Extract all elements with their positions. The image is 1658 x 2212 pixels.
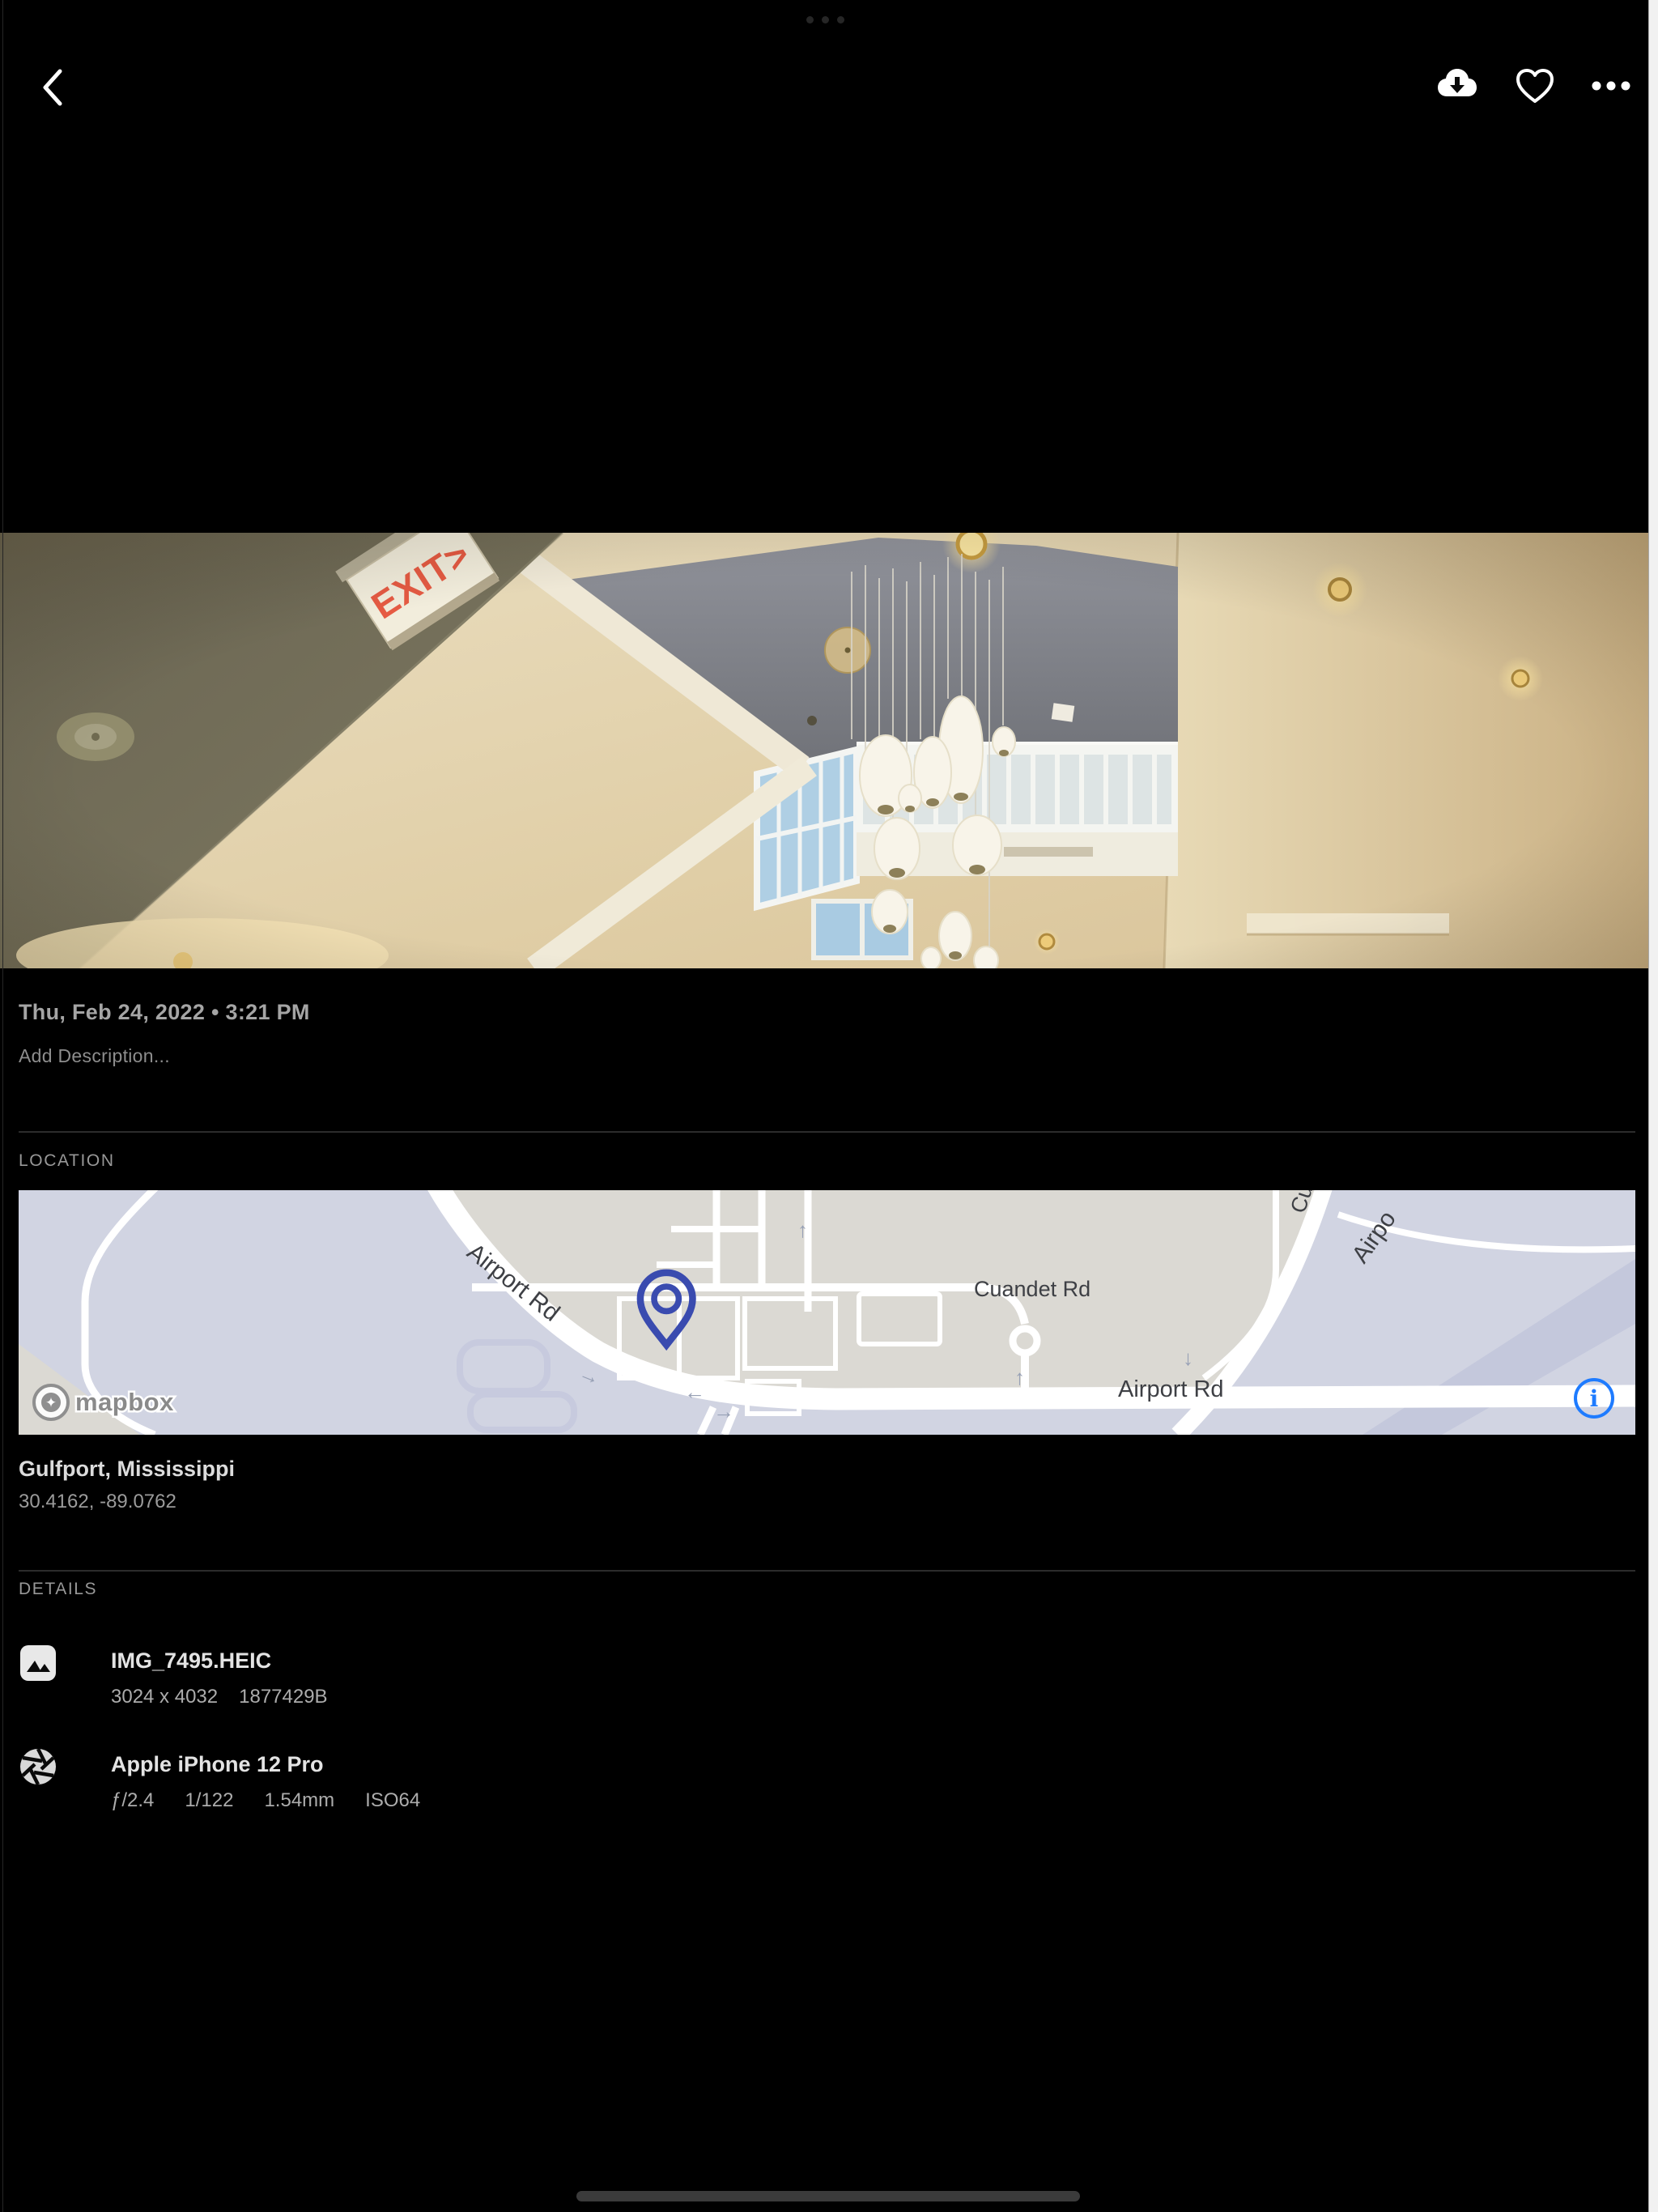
- photo-preview[interactable]: EXIT>: [0, 533, 1658, 968]
- photo-datetime: Thu, Feb 24, 2022 • 3:21 PM: [19, 1000, 310, 1025]
- map-canvas: → ← → ↑ ↑ ↓ Airport Rd Cuandet Rd Airpor…: [19, 1190, 1635, 1435]
- svg-text:↑: ↑: [1014, 1365, 1025, 1389]
- file-size: 1877429B: [239, 1686, 327, 1708]
- file-subtitle: 3024 x 4032 1877429B: [111, 1686, 328, 1708]
- camera-subtitle: ƒ/2.4 1/122 1.54mm ISO64: [111, 1789, 420, 1812]
- download-button[interactable]: [1435, 63, 1480, 108]
- camera-shutter: 1/122: [185, 1789, 233, 1812]
- location-coordinates: 30.4162, -89.0762: [19, 1491, 176, 1513]
- multitasking-dots-icon: [806, 16, 844, 23]
- chevron-left-icon: [37, 68, 70, 107]
- left-edge-line: [2, 0, 3, 2212]
- home-indicator[interactable]: [576, 2191, 1080, 2201]
- more-options-button[interactable]: [1588, 63, 1634, 108]
- camera-focal-length: 1.54mm: [264, 1789, 334, 1812]
- location-map[interactable]: → ← → ↑ ↑ ↓ Airport Rd Cuandet Rd Airpor…: [19, 1190, 1635, 1435]
- svg-text:↑: ↑: [797, 1218, 808, 1242]
- camera-iso: ISO64: [365, 1789, 420, 1812]
- favorite-button[interactable]: [1512, 63, 1558, 108]
- photo-detail-screen: { "toolbar": { "back": "chevron-left", "…: [0, 0, 1658, 2212]
- camera-aperture: ƒ/2.4: [111, 1789, 154, 1812]
- svg-text:→: →: [713, 1399, 734, 1423]
- heart-icon: [1515, 67, 1555, 104]
- svg-text:←: ←: [684, 1380, 705, 1404]
- info-icon: i: [1590, 1385, 1599, 1412]
- camera-aperture-icon: [19, 1747, 57, 1786]
- file-dimensions: 3024 x 4032: [111, 1686, 218, 1708]
- image-file-icon: [19, 1644, 57, 1682]
- details-divider: [19, 1570, 1635, 1572]
- scrollbar[interactable]: [1648, 0, 1658, 2212]
- details-heading: DETAILS: [19, 1580, 97, 1599]
- ellipsis-icon: [1590, 78, 1632, 94]
- add-description-field[interactable]: Add Description...: [19, 1045, 170, 1067]
- location-divider: [19, 1131, 1635, 1133]
- map-label-cuandet-rd: Cuandet Rd: [974, 1277, 1090, 1301]
- location-place: Gulfport, Mississippi: [19, 1457, 235, 1482]
- photo-image: EXIT>: [0, 533, 1658, 968]
- map-attribution-info-button[interactable]: i: [1574, 1378, 1614, 1419]
- cloud-download-icon: [1435, 64, 1479, 108]
- svg-text:↓: ↓: [1183, 1346, 1193, 1370]
- map-label-airport-rd-s: Airport Rd: [1118, 1376, 1224, 1402]
- back-button[interactable]: [31, 65, 76, 110]
- file-name: IMG_7495.HEIC: [111, 1648, 271, 1674]
- camera-name: Apple iPhone 12 Pro: [111, 1752, 324, 1777]
- location-heading: LOCATION: [19, 1151, 115, 1171]
